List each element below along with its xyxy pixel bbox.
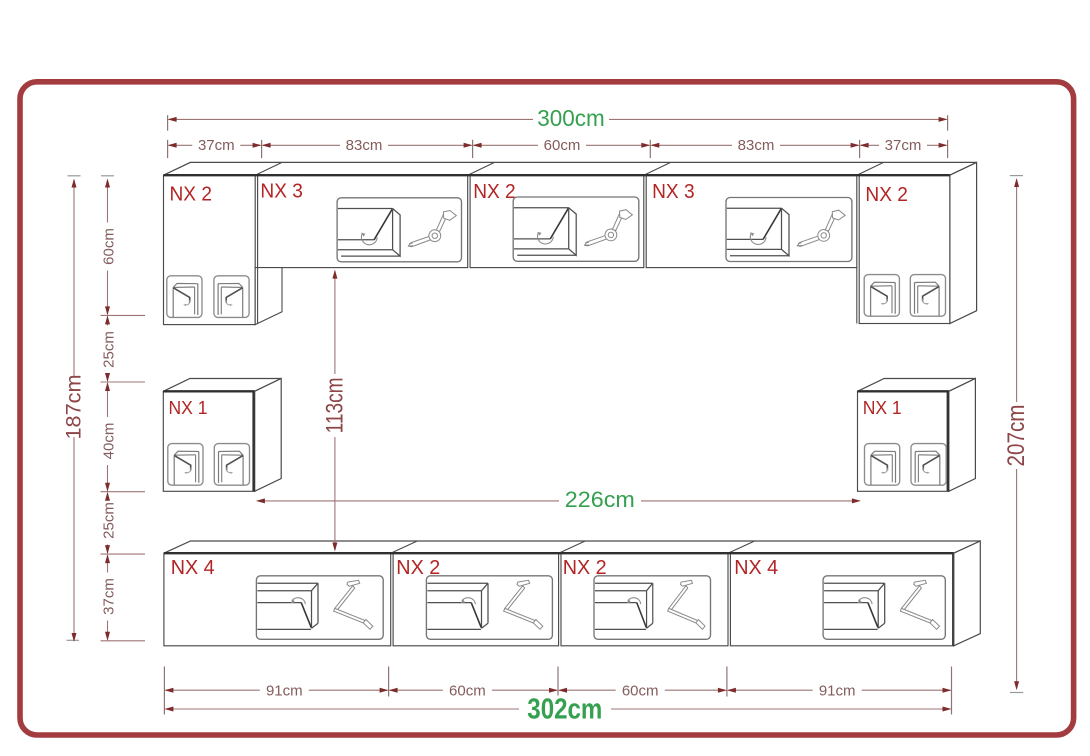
svg-text:NX 2: NX 2 xyxy=(170,183,213,206)
svg-text:NX 3: NX 3 xyxy=(652,180,695,203)
svg-text:NX 1: NX 1 xyxy=(863,398,902,418)
svg-text:187cm: 187cm xyxy=(62,375,86,440)
svg-text:113cm: 113cm xyxy=(322,377,349,433)
svg-text:60cm: 60cm xyxy=(449,682,486,699)
svg-text:60cm: 60cm xyxy=(544,137,581,154)
svg-text:NX 1: NX 1 xyxy=(169,398,208,418)
svg-text:302cm: 302cm xyxy=(527,693,602,725)
svg-text:91cm: 91cm xyxy=(819,682,856,699)
svg-text:NX 4: NX 4 xyxy=(734,556,778,579)
svg-text:226cm: 226cm xyxy=(565,487,635,512)
svg-text:NX 2: NX 2 xyxy=(865,183,908,206)
svg-text:NX 3: NX 3 xyxy=(260,180,303,203)
svg-text:91cm: 91cm xyxy=(266,682,303,699)
svg-text:83cm: 83cm xyxy=(346,137,383,154)
svg-text:207cm: 207cm xyxy=(1003,405,1030,467)
svg-text:37cm: 37cm xyxy=(101,578,118,615)
svg-text:NX 4: NX 4 xyxy=(171,556,215,579)
svg-text:83cm: 83cm xyxy=(738,137,775,154)
svg-text:37cm: 37cm xyxy=(198,137,235,154)
svg-text:NX 2: NX 2 xyxy=(473,180,516,203)
svg-text:40cm: 40cm xyxy=(101,423,118,460)
svg-text:60cm: 60cm xyxy=(101,228,118,265)
svg-text:25cm: 25cm xyxy=(101,331,118,368)
svg-text:25cm: 25cm xyxy=(101,502,118,539)
svg-text:60cm: 60cm xyxy=(622,682,659,699)
svg-text:300cm: 300cm xyxy=(537,105,605,131)
svg-text:37cm: 37cm xyxy=(885,137,922,154)
